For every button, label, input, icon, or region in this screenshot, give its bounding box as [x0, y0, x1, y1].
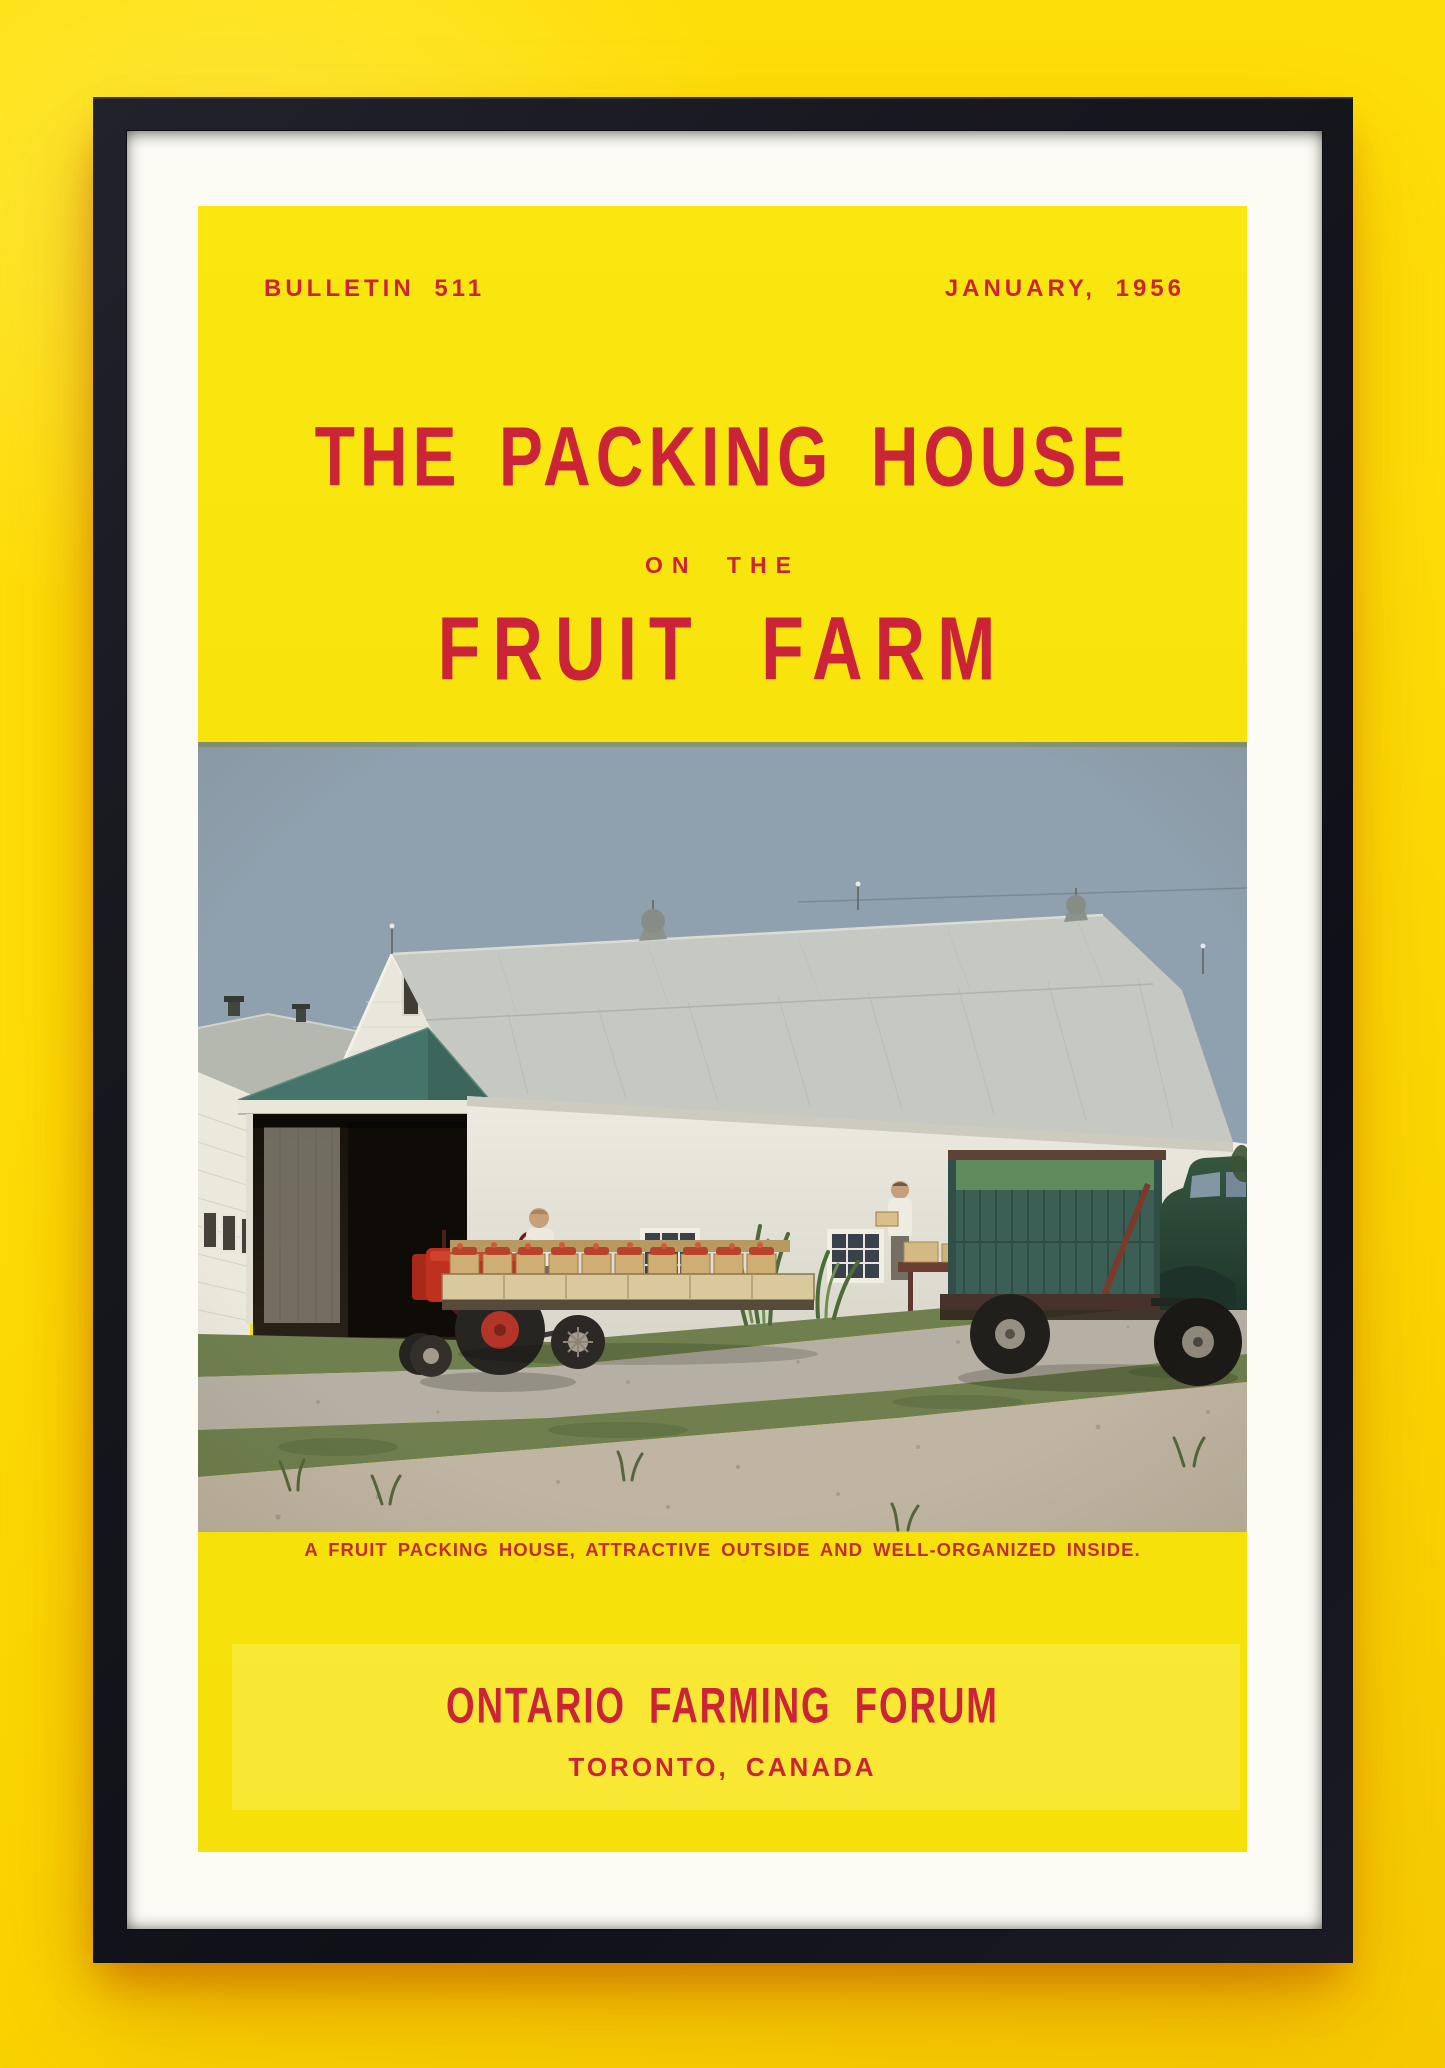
poster-frame: BULLETIN 511 JANUARY, 1956 THE PACKING H… [93, 97, 1353, 1963]
issue-date: JANUARY, 1956 [945, 274, 1185, 304]
bulletin-cover-panel: BULLETIN 511 JANUARY, 1956 THE PACKING H… [198, 206, 1247, 1852]
organization-name: ONTARIO FARMING FORUM [198, 1671, 1247, 1741]
yellow-wall-background: { "poster": { "header": { "bulletin": "B… [0, 0, 1445, 2068]
photo-caption: A FRUIT PACKING HOUSE, ATTRACTIVE OUTSID… [198, 1539, 1247, 1561]
photo-vignette [198, 742, 1247, 1532]
title-line-1: THE PACKING HOUSE [198, 421, 1247, 491]
title-line-3: FRUIT FARM [198, 614, 1247, 684]
bulletin-number: BULLETIN 511 [264, 274, 485, 304]
white-mat-page: BULLETIN 511 JANUARY, 1956 THE PACKING H… [126, 130, 1323, 1930]
cover-photo [198, 742, 1247, 1532]
location-line: TORONTO, CANADA [198, 1751, 1247, 1783]
title-line-2: ON THE [198, 553, 1247, 577]
